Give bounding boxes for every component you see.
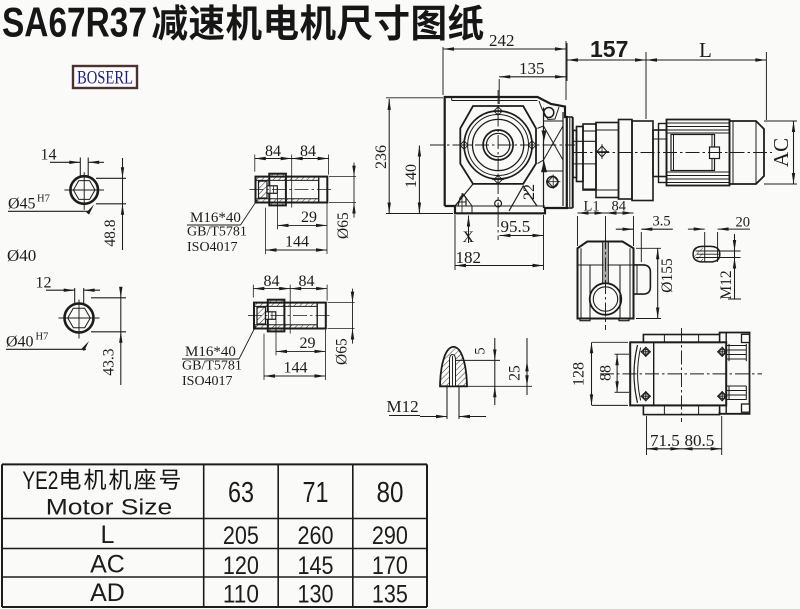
svg-text:140: 140 <box>403 164 420 188</box>
svg-text:Motor Size: Motor Size <box>46 495 173 520</box>
svg-text:71.5: 71.5 <box>650 431 680 450</box>
svg-text:63: 63 <box>228 477 254 509</box>
svg-text:84: 84 <box>612 199 627 215</box>
svg-text:Ø40: Ø40 <box>6 334 34 351</box>
svg-text:80: 80 <box>377 477 404 509</box>
svg-text:L: L <box>699 38 712 62</box>
svg-text:242: 242 <box>489 31 515 50</box>
svg-text:144: 144 <box>285 234 309 251</box>
svg-text:130: 130 <box>298 581 334 609</box>
svg-text:Ø40: Ø40 <box>7 246 36 265</box>
svg-text:43.3: 43.3 <box>101 348 118 375</box>
svg-text:5: 5 <box>472 347 488 354</box>
svg-text:290: 290 <box>372 522 408 550</box>
svg-text:182: 182 <box>456 248 482 267</box>
svg-text:88: 88 <box>598 365 615 381</box>
svg-text:Ø65: Ø65 <box>334 338 351 365</box>
svg-text:M12: M12 <box>387 397 419 416</box>
svg-text:L: L <box>101 521 115 549</box>
svg-text:135: 135 <box>372 581 408 609</box>
svg-text:157: 157 <box>590 36 628 62</box>
svg-text:128: 128 <box>571 362 588 386</box>
svg-text:GB/T5781: GB/T5781 <box>187 225 247 240</box>
svg-text:84: 84 <box>300 143 316 160</box>
svg-text:20: 20 <box>736 215 751 231</box>
svg-text:YE2: YE2 <box>22 467 58 495</box>
svg-text:29: 29 <box>300 335 316 352</box>
svg-text:M12: M12 <box>718 270 735 299</box>
svg-text:135: 135 <box>519 59 545 78</box>
svg-text:H7: H7 <box>37 194 50 205</box>
svg-text:80.5: 80.5 <box>685 431 715 450</box>
svg-text:205: 205 <box>223 522 259 550</box>
svg-text:Ø45: Ø45 <box>8 196 36 213</box>
svg-text:ISO4017: ISO4017 <box>182 374 233 389</box>
svg-text:48.8: 48.8 <box>102 219 119 246</box>
svg-text:14: 14 <box>41 147 57 164</box>
svg-text:22: 22 <box>521 184 538 200</box>
svg-text:236: 236 <box>373 145 390 169</box>
svg-text:145: 145 <box>298 552 334 580</box>
svg-text:X: X <box>463 229 475 246</box>
svg-text:84: 84 <box>265 143 281 160</box>
svg-text:25: 25 <box>507 365 524 381</box>
svg-text:Ø155: Ø155 <box>659 258 676 293</box>
svg-text:BOSERL: BOSERL <box>77 67 133 88</box>
svg-text:12: 12 <box>36 275 52 292</box>
svg-text:144: 144 <box>284 360 308 377</box>
svg-text:3.5: 3.5 <box>653 214 671 230</box>
svg-text:L1: L1 <box>584 199 600 215</box>
svg-text:AC: AC <box>769 138 793 167</box>
svg-text:84: 84 <box>299 273 315 290</box>
svg-text:71: 71 <box>303 477 329 509</box>
svg-text:120: 120 <box>223 552 259 580</box>
svg-text:GB/T5781: GB/T5781 <box>182 359 242 374</box>
svg-text:H7: H7 <box>36 332 49 343</box>
svg-text:ISO4017: ISO4017 <box>187 240 238 255</box>
svg-text:95.5: 95.5 <box>501 217 531 236</box>
svg-text:Ø65: Ø65 <box>335 212 352 239</box>
svg-text:84: 84 <box>264 273 280 290</box>
svg-text:AC: AC <box>90 551 125 579</box>
svg-text:SA67R37: SA67R37 <box>2 0 147 46</box>
svg-text:AD: AD <box>90 579 125 607</box>
svg-text:110: 110 <box>223 581 259 609</box>
svg-text:29: 29 <box>301 209 317 226</box>
svg-text:260: 260 <box>298 522 334 550</box>
svg-text:170: 170 <box>372 552 408 580</box>
